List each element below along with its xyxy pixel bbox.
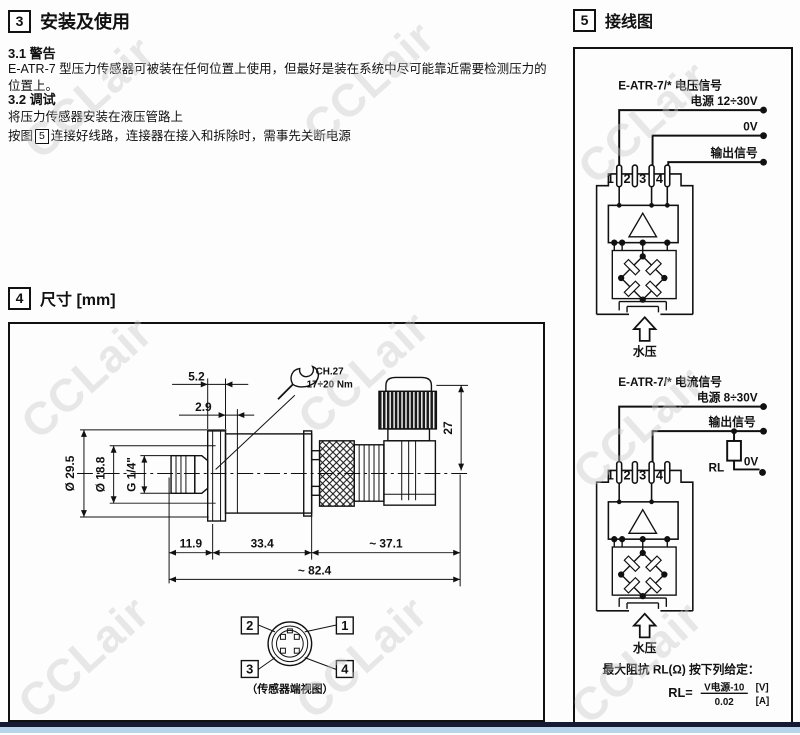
sensor-symbol bbox=[597, 462, 693, 638]
hex-flange bbox=[208, 431, 226, 521]
knurled-nut bbox=[320, 441, 355, 506]
v-pin3: 3 bbox=[639, 171, 646, 186]
current-title: E-ATR-7/* 电流信号 bbox=[618, 375, 722, 389]
section5-title-row: 5接线图 bbox=[573, 8, 653, 32]
rl-label: RL bbox=[709, 461, 725, 474]
end-view-pin2: 2 bbox=[246, 618, 253, 633]
v-pin4: 4 bbox=[656, 171, 664, 186]
section4-title: 尺寸 [mm] bbox=[40, 292, 116, 309]
dim-dia-29-5: Ø 29.5 bbox=[63, 455, 77, 491]
supply-terminal bbox=[760, 403, 767, 410]
footer-blue-bar bbox=[0, 727, 800, 733]
v-pin1: 1 bbox=[607, 171, 614, 186]
formula-numerator: V电源-10 bbox=[704, 680, 745, 693]
v-pressure-label: 水压 bbox=[633, 345, 657, 359]
dim-27: 27 bbox=[441, 421, 455, 435]
connector-end-view bbox=[241, 617, 353, 677]
dim-dia-18-8: Ø 18.8 bbox=[94, 456, 108, 492]
formula-unit-bottom: [A] bbox=[756, 696, 770, 707]
current-supply-label: 电源 8÷30V bbox=[697, 391, 758, 405]
voltage-zero-label: 0V bbox=[743, 121, 758, 134]
section4-title-row: 4尺寸 [mm] bbox=[8, 286, 116, 310]
current-output-label: 输出信号 bbox=[709, 415, 756, 429]
end-view-pin4: 4 bbox=[341, 661, 349, 676]
section3-number-box: 3 bbox=[8, 10, 31, 33]
voltage-title: E-ATR-7/* 电压信号 bbox=[618, 78, 722, 92]
section5-number-box: 5 bbox=[573, 9, 596, 32]
warning-body: E-ATR-7 型压力传感器可被装在任何位置上使用，但最好是装在系统中尽可能靠近… bbox=[8, 61, 553, 95]
dim-11-9: 11.9 bbox=[180, 537, 203, 551]
end-view-pin3: 3 bbox=[246, 661, 253, 676]
section4-number-box: 4 bbox=[8, 287, 31, 310]
c-pin2: 2 bbox=[623, 467, 630, 482]
dimension-drawing: 5.2 2.9 CH.27 17÷20 Nm 27 Ø 29.5 Ø 18.8 … bbox=[10, 324, 543, 720]
leader-line bbox=[216, 395, 295, 469]
voltage-output-label: 输出信号 bbox=[711, 146, 758, 160]
dim-g14: G 1/4" bbox=[124, 457, 138, 492]
formula-denominator: 0.02 bbox=[715, 697, 735, 708]
sensor-symbol bbox=[597, 165, 693, 341]
dim-82-4: ~ 82.4 bbox=[298, 563, 332, 577]
cable-gland-dome bbox=[386, 377, 432, 391]
formula-unit-top: [V] bbox=[756, 682, 769, 693]
dim-2-9: 2.9 bbox=[195, 400, 212, 414]
current-zero-label: 0V bbox=[744, 456, 759, 469]
v-pin2: 2 bbox=[623, 171, 630, 186]
voltage-supply-label: 电源 12÷30V bbox=[690, 94, 757, 108]
pin-contact bbox=[280, 648, 285, 653]
figure-5-reference: 5 bbox=[35, 129, 49, 144]
dim-33-4: 33.4 bbox=[251, 537, 275, 551]
dim-37-1: ~ 37.1 bbox=[369, 537, 403, 551]
thread-stub bbox=[171, 456, 195, 494]
wrench-label-1: CH.27 bbox=[316, 366, 344, 377]
rl-formula: 最大阻抗 RL(Ω) 按下列给定： RL= V电源-10 0.02 [V] [A… bbox=[602, 663, 769, 708]
current-diagram: E-ATR-7/* 电流信号 电源 8÷30V 输出信号 RL 0V 1 2 3… bbox=[597, 375, 767, 655]
warning-heading: 3.1 警告 bbox=[8, 43, 56, 62]
formula-lhs: RL= bbox=[668, 685, 692, 700]
zero-terminal bbox=[759, 469, 766, 476]
dimension-drawing-box: 5.2 2.9 CH.27 17÷20 Nm 27 Ø 29.5 Ø 18.8 … bbox=[8, 322, 545, 722]
setup-line2: 按图5连接好线路，连接器在接入和拆除时，需事先关断电源 bbox=[8, 128, 351, 145]
zero-terminal bbox=[760, 132, 767, 139]
setup-line1: 将压力传感器安装在液压管路上 bbox=[8, 109, 183, 126]
section5-title: 接线图 bbox=[605, 14, 653, 31]
section3-title-row: 3安装及使用 bbox=[8, 8, 130, 34]
rl-resistor bbox=[727, 441, 741, 461]
section3-title: 安装及使用 bbox=[40, 12, 130, 32]
rl-note: 最大阻抗 RL(Ω) 按下列给定： bbox=[602, 663, 759, 677]
end-view-pin1: 1 bbox=[341, 618, 348, 633]
thread-chamfer bbox=[195, 456, 208, 494]
setup-heading: 3.2 调试 bbox=[8, 89, 56, 108]
cable-gland-nut bbox=[379, 391, 436, 429]
output-terminal bbox=[760, 428, 767, 435]
c-pin1: 1 bbox=[607, 467, 614, 482]
end-view-caption: （传感器端视图） bbox=[246, 681, 333, 695]
pin-contact bbox=[294, 634, 299, 639]
c-pin3: 3 bbox=[639, 467, 646, 482]
wrench-label-2: 17÷20 Nm bbox=[307, 379, 353, 390]
output-terminal bbox=[760, 159, 767, 166]
setup-line2-prefix: 按图 bbox=[8, 129, 33, 143]
dim-5-2: 5.2 bbox=[188, 369, 205, 383]
output-wire bbox=[668, 162, 762, 167]
wiring-diagram-box: E-ATR-7/* 电压信号 电源 12÷30V 0V 输出信号 1 2 3 4… bbox=[573, 47, 793, 725]
setup-line2-suffix: 连接好线路，连接器在接入和拆除时，需事先关断电源 bbox=[51, 129, 351, 143]
pin-contact bbox=[294, 648, 299, 653]
voltage-diagram: E-ATR-7/* 电压信号 电源 12÷30V 0V 输出信号 1 2 3 4… bbox=[597, 78, 767, 358]
wiring-diagram: E-ATR-7/* 电压信号 电源 12÷30V 0V 输出信号 1 2 3 4… bbox=[575, 49, 791, 723]
c-pin4: 4 bbox=[656, 467, 664, 482]
supply-terminal bbox=[760, 107, 767, 114]
c-pressure-label: 水压 bbox=[633, 641, 657, 655]
pin-contact bbox=[280, 634, 285, 639]
